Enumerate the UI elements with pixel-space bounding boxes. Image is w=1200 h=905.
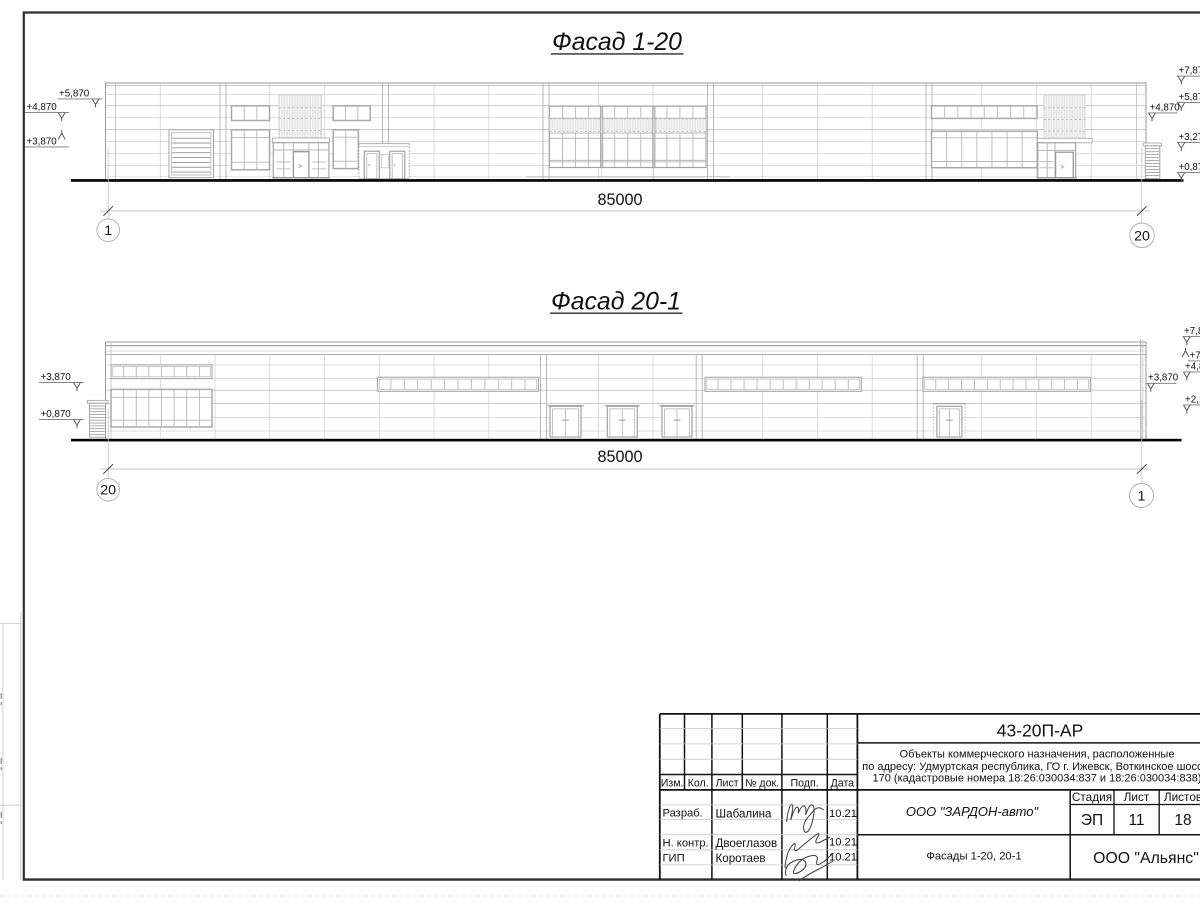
svg-text:Листов: Листов <box>1164 790 1200 804</box>
svg-text:Фасады 1-20, 20-1: Фасады 1-20, 20-1 <box>926 850 1021 862</box>
svg-text:10.21: 10.21 <box>829 808 857 820</box>
svg-text:Дата: Дата <box>831 778 855 790</box>
svg-text:+7,870: +7,870 <box>1179 66 1200 77</box>
svg-text:Объекты коммерческого назначен: Объекты коммерческого назначения, распол… <box>900 749 1175 761</box>
svg-text:20: 20 <box>100 483 116 499</box>
svg-text:43-20П-АР: 43-20П-АР <box>997 720 1084 740</box>
svg-text:+0,870: +0,870 <box>1179 162 1200 173</box>
svg-text:Подп.: Подп. <box>791 778 819 790</box>
svg-text:ООО "ЗАРДОН-авто": ООО "ЗАРДОН-авто" <box>906 804 1040 819</box>
svg-text:Лист: Лист <box>1124 790 1150 804</box>
svg-text:18: 18 <box>1174 812 1191 829</box>
svg-text:85000: 85000 <box>597 191 642 209</box>
svg-text:1: 1 <box>1138 488 1146 504</box>
svg-text:+4,870: +4,870 <box>1150 102 1181 113</box>
svg-text:+3,870: +3,870 <box>41 372 72 383</box>
svg-text:10.21: 10.21 <box>829 836 857 848</box>
svg-text:ООО "Альянс": ООО "Альянс" <box>1093 850 1199 867</box>
svg-text:№ док.: № док. <box>745 778 779 790</box>
svg-text:1: 1 <box>104 223 112 239</box>
svg-text:ГИП: ГИП <box>663 853 685 865</box>
svg-text:Стадия: Стадия <box>1072 790 1112 804</box>
svg-text:+4,870: +4,870 <box>27 102 58 113</box>
svg-text:+2,180: +2,180 <box>1185 394 1200 405</box>
svg-text:Н. контр.: Н. контр. <box>663 837 709 849</box>
svg-text:+5,870: +5,870 <box>1179 92 1200 103</box>
svg-text:+7,270: +7,270 <box>1190 351 1200 362</box>
svg-text:Фасад 20-1: Фасад 20-1 <box>551 288 681 315</box>
svg-text:11: 11 <box>1128 812 1144 829</box>
svg-text:Шабалина: Шабалина <box>716 807 773 820</box>
svg-text:+5,870: +5,870 <box>59 88 90 99</box>
svg-text:+7,870: +7,870 <box>1184 326 1200 337</box>
svg-text:20: 20 <box>1134 228 1150 244</box>
svg-text:Изм.: Изм. <box>661 778 684 790</box>
svg-text:+3,870: +3,870 <box>27 136 58 147</box>
svg-text:по адресу: Удмуртская республи: по адресу: Удмуртская республика, ГО г. … <box>862 761 1200 773</box>
svg-text:+0,870: +0,870 <box>41 409 72 420</box>
svg-text:85000: 85000 <box>597 448 642 466</box>
svg-text:+3,870: +3,870 <box>1148 373 1179 384</box>
svg-text:Кол.: Кол. <box>688 778 709 790</box>
svg-text:+4,870: +4,870 <box>1185 361 1200 372</box>
svg-text:Коротаев: Коротаев <box>716 852 766 865</box>
svg-text:Лист: Лист <box>716 778 739 790</box>
svg-text:Разраб.: Разраб. <box>663 807 703 819</box>
svg-text:ЭП: ЭП <box>1081 812 1103 829</box>
svg-text:170 (кадастровые номера 18:26:: 170 (кадастровые номера 18:26:030034:837… <box>873 773 1200 785</box>
svg-text:Двоеглазов: Двоеглазов <box>716 837 778 850</box>
svg-text:+3,270: +3,270 <box>1179 132 1200 143</box>
svg-text:Фасад 1-20: Фасад 1-20 <box>552 29 682 56</box>
